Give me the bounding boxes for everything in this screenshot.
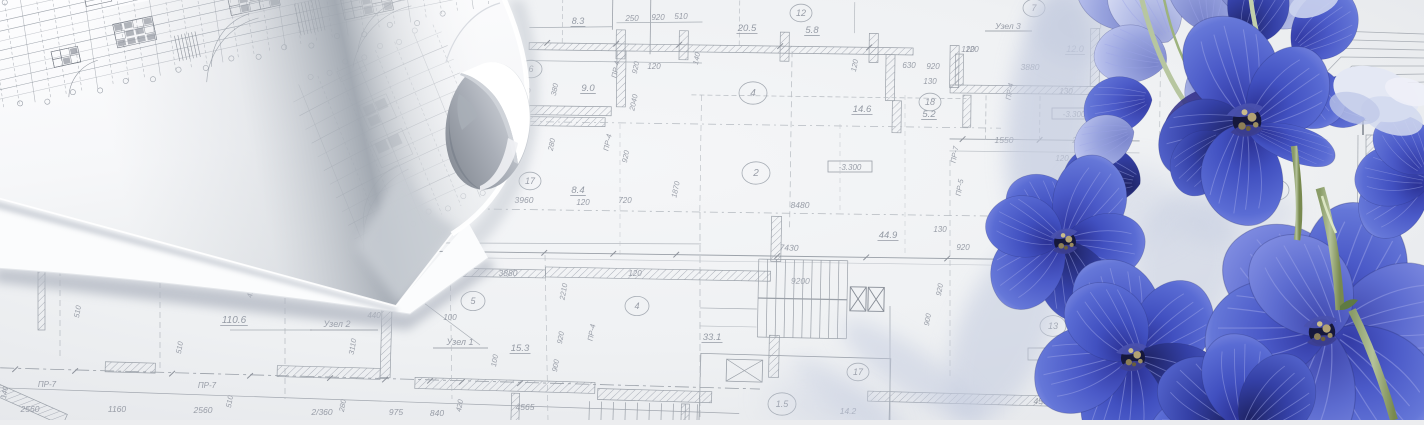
- svg-text:17: 17: [525, 176, 536, 186]
- svg-text:17: 17: [853, 367, 864, 377]
- svg-text:110.6: 110.6: [222, 315, 247, 326]
- svg-text:ПР-7: ПР-7: [38, 380, 57, 389]
- svg-text:510: 510: [674, 12, 688, 21]
- svg-text:20.5: 20.5: [737, 23, 757, 34]
- svg-text:2560: 2560: [193, 405, 213, 415]
- svg-text:9.0: 9.0: [581, 83, 595, 94]
- svg-text:7430: 7430: [779, 242, 798, 252]
- svg-text:120: 120: [965, 45, 979, 54]
- svg-text:15.3: 15.3: [511, 343, 530, 354]
- svg-text:130: 130: [923, 77, 937, 86]
- svg-text:3880: 3880: [499, 268, 518, 278]
- svg-text:8480: 8480: [791, 200, 810, 210]
- svg-text:3960: 3960: [515, 195, 534, 205]
- svg-text:920: 920: [651, 13, 665, 22]
- svg-text:14.6: 14.6: [853, 104, 872, 115]
- svg-text:120: 120: [628, 269, 642, 278]
- svg-text:8.4: 8.4: [571, 185, 584, 196]
- svg-text:120: 120: [647, 62, 661, 71]
- svg-text:975: 975: [389, 407, 403, 417]
- svg-text:920: 920: [956, 243, 970, 252]
- svg-text:2560: 2560: [20, 404, 40, 414]
- svg-text:5.8: 5.8: [805, 25, 819, 36]
- svg-text:12: 12: [796, 8, 806, 18]
- svg-text:100: 100: [443, 313, 457, 322]
- svg-text:44.9: 44.9: [879, 230, 898, 241]
- svg-text:2: 2: [752, 168, 759, 179]
- svg-text:4: 4: [750, 88, 756, 99]
- svg-text:18: 18: [925, 97, 935, 107]
- svg-text:ПР-7: ПР-7: [198, 381, 217, 390]
- svg-text:250: 250: [624, 14, 639, 23]
- svg-text:1160: 1160: [108, 404, 127, 414]
- svg-text:720: 720: [618, 196, 632, 205]
- svg-text:920: 920: [926, 62, 940, 71]
- svg-text:120: 120: [576, 198, 590, 207]
- svg-text:Узел 1: Узел 1: [445, 337, 473, 347]
- svg-text:-3.300: -3.300: [839, 163, 862, 172]
- svg-text:9200: 9200: [791, 276, 810, 286]
- svg-text:4565: 4565: [516, 402, 535, 412]
- svg-text:840: 840: [430, 408, 444, 418]
- svg-text:Узел 3: Узел 3: [994, 21, 1021, 31]
- svg-text:630: 630: [902, 61, 916, 70]
- svg-text:130: 130: [933, 225, 947, 234]
- svg-text:2/360: 2/360: [310, 407, 333, 417]
- svg-text:33.1: 33.1: [703, 332, 722, 343]
- svg-text:4: 4: [634, 301, 639, 311]
- svg-text:8.3: 8.3: [572, 16, 585, 26]
